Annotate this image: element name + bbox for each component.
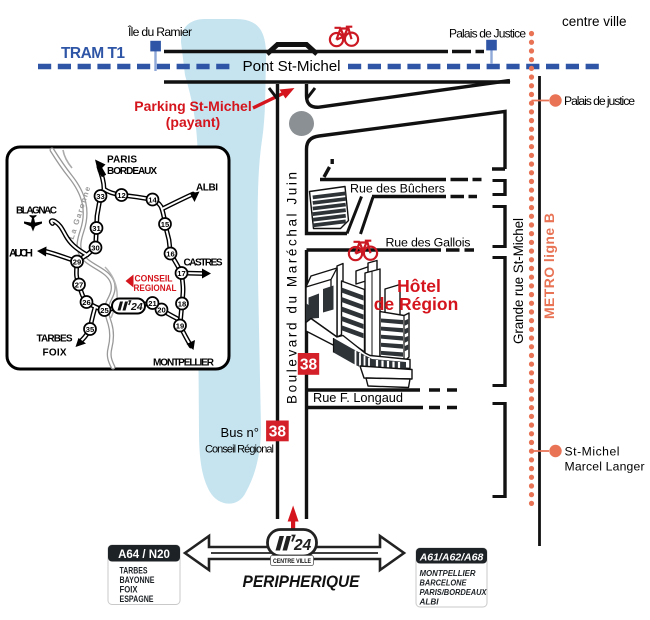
svg-text:PARIS: PARIS bbox=[107, 155, 137, 166]
svg-text:19: 19 bbox=[176, 322, 184, 331]
svg-text:MONTPELLIER: MONTPELLIER bbox=[153, 358, 215, 369]
svg-text:MONTPELLIER: MONTPELLIER bbox=[420, 568, 477, 578]
svg-text:REGIONAL: REGIONAL bbox=[134, 283, 177, 294]
svg-text:(payant): (payant) bbox=[166, 114, 220, 130]
svg-text:31: 31 bbox=[92, 224, 101, 233]
svg-text:ALBI: ALBI bbox=[196, 183, 218, 194]
svg-text:14: 14 bbox=[148, 196, 157, 205]
svg-text:BORDEAUX: BORDEAUX bbox=[107, 166, 157, 177]
svg-text:BARCELONE: BARCELONE bbox=[420, 578, 467, 588]
svg-text:PARIS/BORDEAUX: PARIS/BORDEAUX bbox=[420, 587, 488, 597]
svg-text:TRAM T1: TRAM T1 bbox=[61, 45, 125, 62]
svg-text:ESPAGNE: ESPAGNE bbox=[120, 594, 154, 604]
svg-text:38: 38 bbox=[269, 424, 287, 441]
svg-text:16: 16 bbox=[166, 250, 174, 259]
svg-text:Rue des Bûchers: Rue des Bûchers bbox=[350, 182, 445, 196]
svg-text:BLAGNAC: BLAGNAC bbox=[16, 206, 57, 217]
svg-text:FOIX: FOIX bbox=[120, 585, 138, 595]
svg-text:TARBES: TARBES bbox=[120, 566, 148, 576]
svg-text:ALBI: ALBI bbox=[419, 597, 440, 607]
svg-text:35: 35 bbox=[86, 325, 95, 334]
svg-text:21: 21 bbox=[148, 299, 157, 308]
svg-text:Palais de justice: Palais de justice bbox=[564, 94, 635, 108]
svg-text:24: 24 bbox=[293, 537, 312, 554]
svg-text:17: 17 bbox=[177, 269, 185, 278]
svg-text:A61/A62/A68: A61/A62/A68 bbox=[419, 552, 484, 564]
svg-text:Bus n°: Bus n° bbox=[221, 425, 259, 440]
svg-text:33: 33 bbox=[96, 192, 104, 201]
svg-text:Rue F. Longaud: Rue F. Longaud bbox=[313, 390, 403, 405]
svg-text:TARBES: TARBES bbox=[37, 334, 73, 345]
svg-text:25: 25 bbox=[100, 306, 109, 315]
svg-text:12: 12 bbox=[117, 191, 125, 200]
svg-text:20: 20 bbox=[157, 306, 165, 315]
svg-text:CENTRE VILLE: CENTRE VILLE bbox=[273, 558, 311, 565]
svg-text:18: 18 bbox=[178, 300, 186, 309]
svg-text:15: 15 bbox=[161, 220, 170, 229]
svg-text:38: 38 bbox=[300, 357, 318, 374]
svg-text:BAYONNE: BAYONNE bbox=[120, 575, 155, 585]
svg-text:FOIX: FOIX bbox=[43, 348, 67, 359]
svg-text:Palais de Justice: Palais de Justice bbox=[449, 27, 526, 41]
svg-text:27: 27 bbox=[75, 281, 83, 290]
svg-text:Île du Ramier: Île du Ramier bbox=[127, 24, 192, 39]
svg-text:Grande rue St-Michel: Grande rue St-Michel bbox=[511, 218, 526, 344]
svg-text:Rue des Gallois: Rue des Gallois bbox=[386, 236, 471, 250]
svg-text:St-Michel: St-Michel bbox=[565, 445, 620, 459]
svg-text:Hôtel: Hôtel bbox=[397, 276, 441, 296]
svg-text:Marcel Langer: Marcel Langer bbox=[565, 460, 645, 474]
svg-text:Pont St-Michel: Pont St-Michel bbox=[243, 58, 341, 75]
svg-text:METRO ligne B: METRO ligne B bbox=[541, 213, 557, 319]
svg-text:29: 29 bbox=[73, 258, 81, 267]
svg-text:de Région: de Région bbox=[374, 294, 459, 314]
svg-text:CASTRES: CASTRES bbox=[184, 258, 223, 269]
svg-text:26: 26 bbox=[82, 298, 90, 307]
svg-text:centre ville: centre ville bbox=[562, 14, 627, 29]
svg-text:30: 30 bbox=[91, 244, 99, 253]
svg-text:Conseil Régional: Conseil Régional bbox=[205, 444, 274, 456]
svg-text:PERIPHERIQUE: PERIPHERIQUE bbox=[243, 573, 361, 591]
svg-text:Parking St-Michel: Parking St-Michel bbox=[134, 98, 251, 114]
svg-text:AUCH: AUCH bbox=[9, 248, 33, 260]
svg-text:24: 24 bbox=[130, 301, 143, 313]
svg-text:A64 / N20: A64 / N20 bbox=[118, 549, 170, 561]
